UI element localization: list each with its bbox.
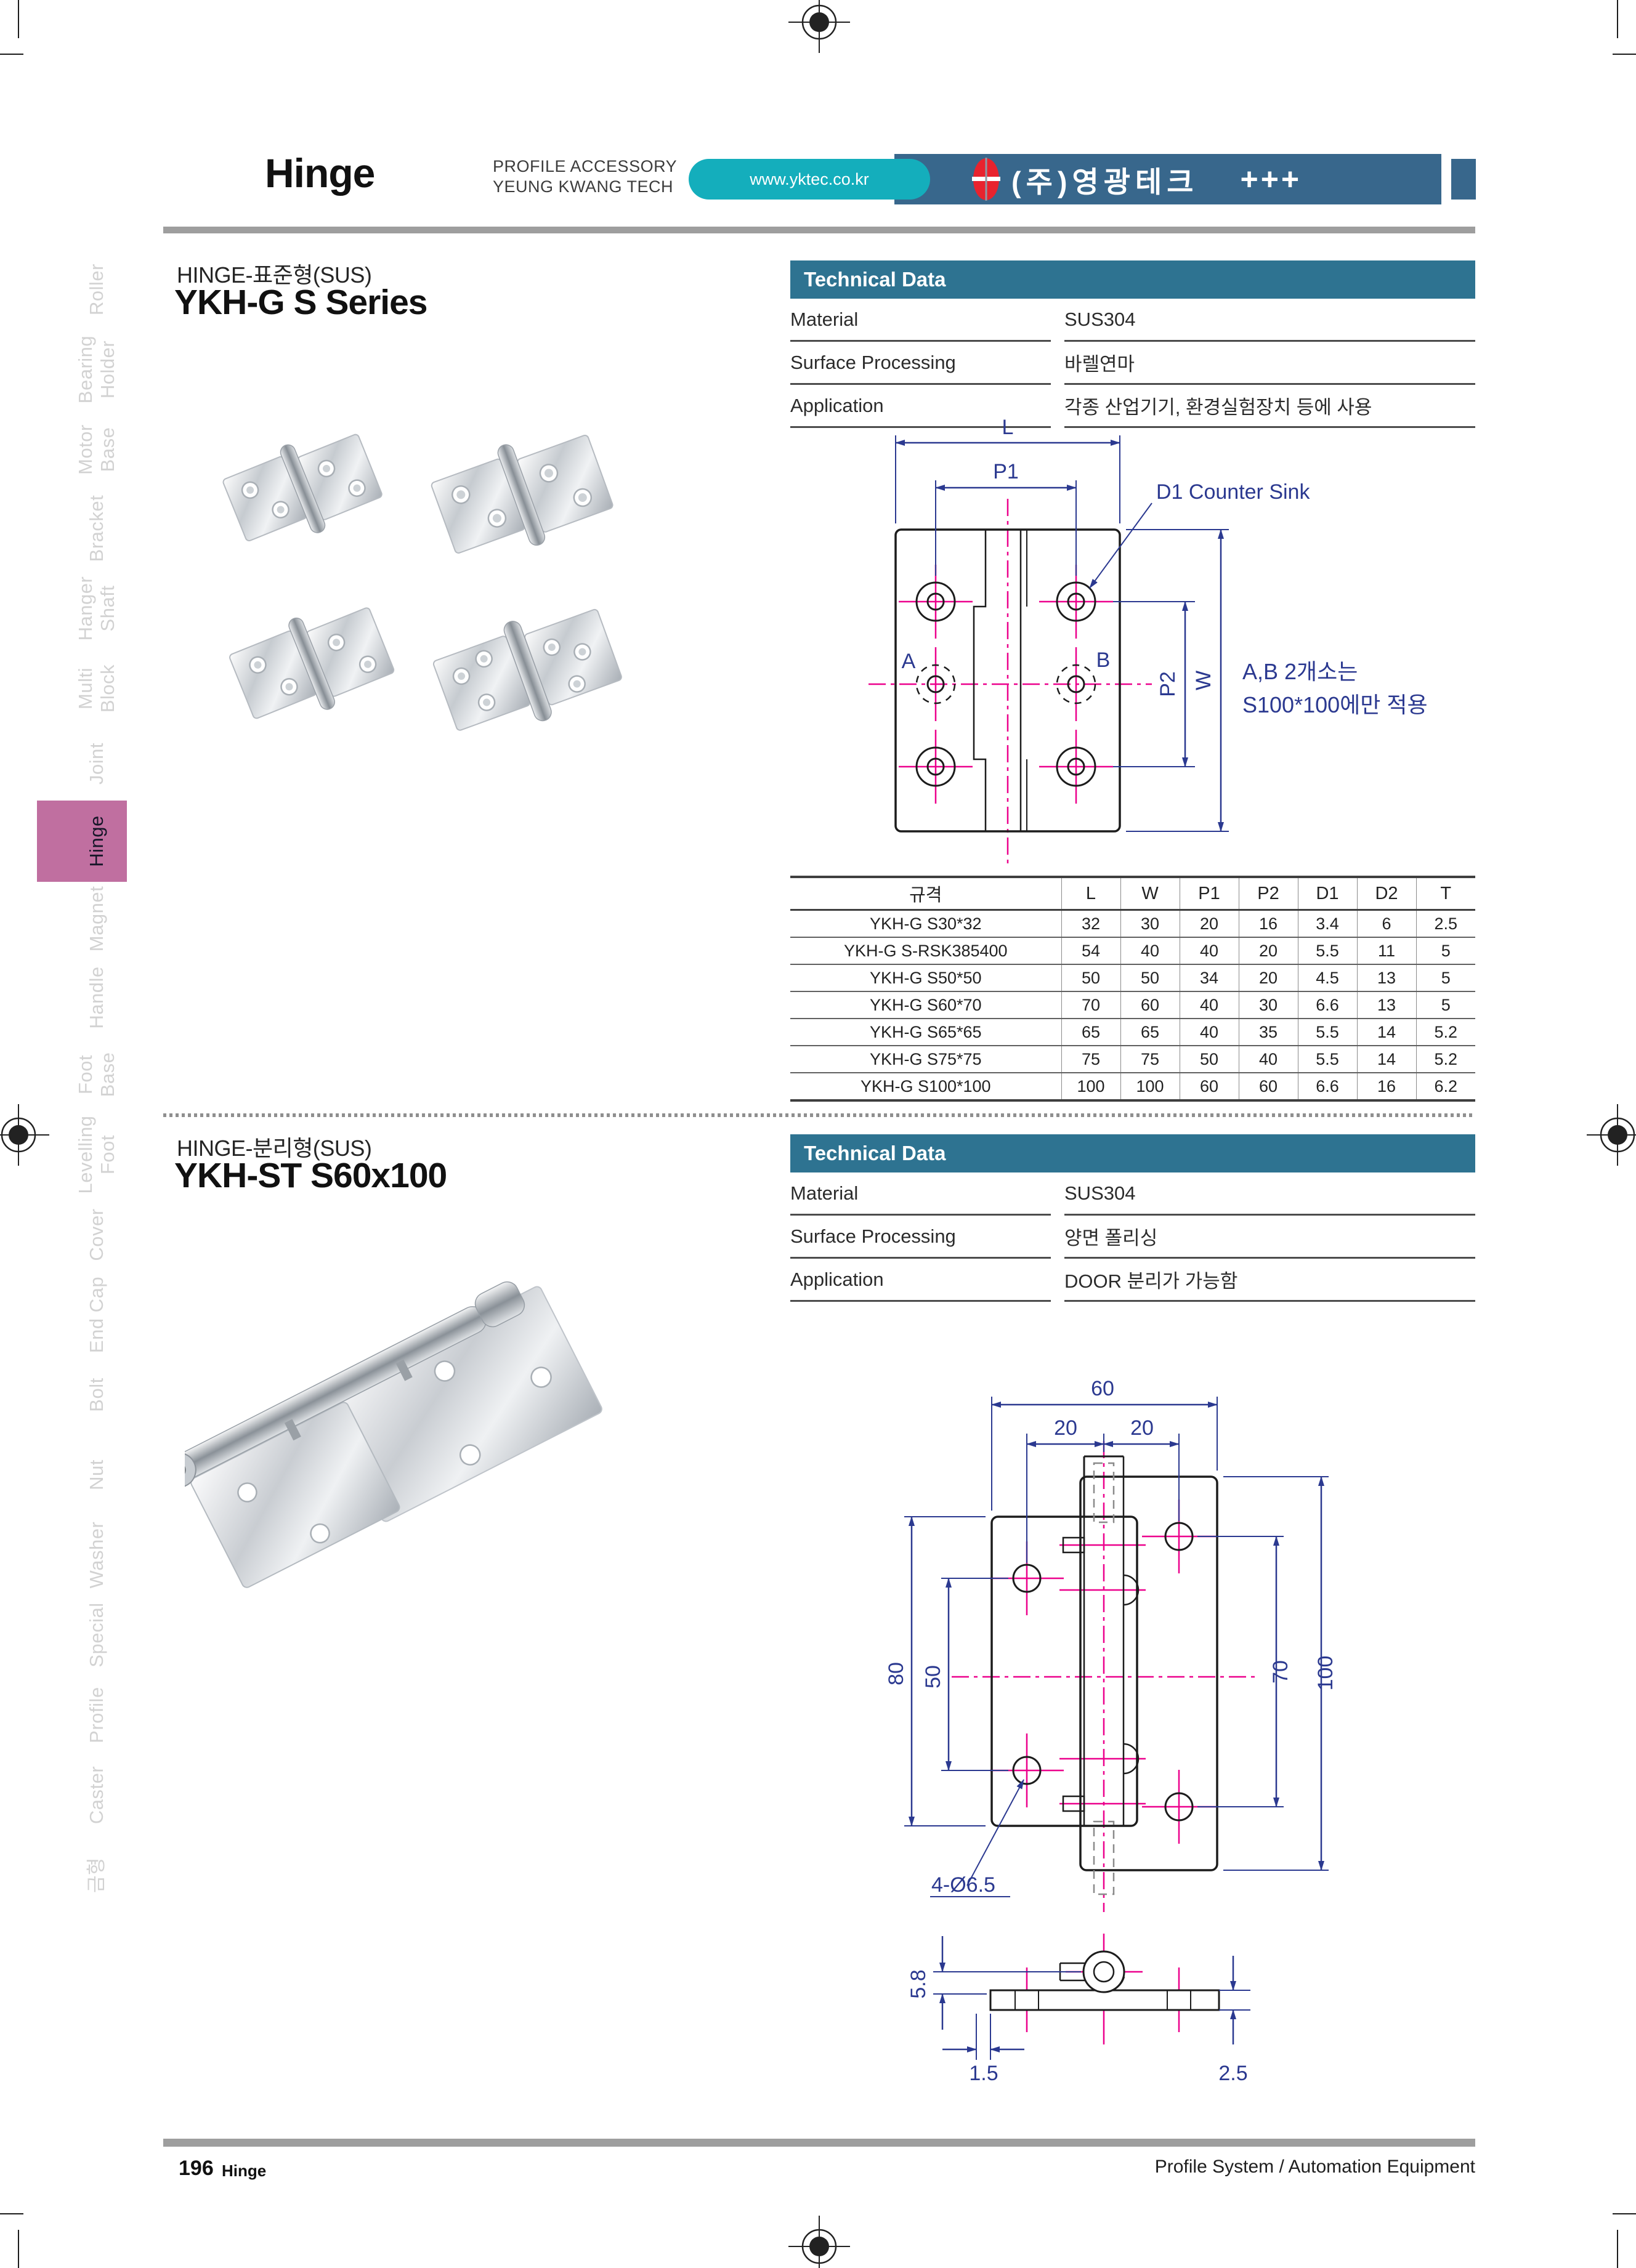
svg-text:1.5: 1.5 xyxy=(969,2062,998,2084)
technical-drawing-ykh-st: 60 20 20 80 50 70 100 4-Ø6.5 xyxy=(856,1355,1398,2084)
registration-target-icon xyxy=(0,1104,49,1166)
crop-mark xyxy=(0,2213,23,2214)
registration-target-icon xyxy=(1587,1104,1636,1166)
hinge-photo xyxy=(219,419,386,559)
svg-text:80: 80 xyxy=(885,1662,908,1685)
svg-text:5.8: 5.8 xyxy=(907,1969,930,1998)
header-rule xyxy=(163,227,1475,233)
svg-text:60: 60 xyxy=(1091,1377,1114,1400)
svg-text:D1 Counter Sink: D1 Counter Sink xyxy=(1156,480,1310,504)
table-row: YKH-G S75*75757550405.5145.2 xyxy=(790,1046,1475,1073)
technical-data-header: Technical Data xyxy=(790,260,1475,299)
crop-mark xyxy=(1617,2230,1618,2268)
svg-text:2.5: 2.5 xyxy=(1218,2062,1247,2084)
table-row: Material SUS304 xyxy=(790,1172,1475,1216)
sidebar-item-mold[interactable]: 금형 xyxy=(71,1801,123,1949)
svg-text:A,B 2개소는: A,B 2개소는 xyxy=(1242,659,1358,684)
plus-marks: +++ xyxy=(1241,161,1302,197)
company-name: (주)영광테크 xyxy=(1011,158,1199,201)
page-number: 196 xyxy=(179,2157,214,2181)
spec-table: 규격 L W P1 P2 D1 D2 T YKH-G S30*323230201… xyxy=(790,876,1475,1102)
catalog-page: Roller BearingHolder MotorBase Bracket H… xyxy=(0,0,1636,2268)
svg-text:P1: P1 xyxy=(993,460,1019,483)
svg-text:50: 50 xyxy=(921,1665,945,1689)
product-photo-ykh-st xyxy=(185,1269,628,1601)
header-subtitle: PROFILE ACCESSORY YEUNG KWANG TECH xyxy=(493,156,677,197)
hinge-photo xyxy=(429,592,626,750)
svg-text:S100*100에만 적용: S100*100에만 적용 xyxy=(1242,692,1428,717)
section-divider xyxy=(163,1113,1475,1117)
svg-text:70: 70 xyxy=(1269,1660,1292,1684)
crop-mark xyxy=(18,2230,19,2268)
table-row: Material SUS304 xyxy=(790,299,1475,342)
table-row: YKH-G S65*65656540355.5145.2 xyxy=(790,1019,1475,1046)
table-header-row: 규격 L W P1 P2 D1 D2 T xyxy=(790,877,1475,910)
table-row: Surface Processing 바렐연마 xyxy=(790,342,1475,385)
product-photo-ykh-g-series xyxy=(185,388,659,776)
table-row: Application DOOR 분리가 가능함 xyxy=(790,1259,1475,1302)
table-row: YKH-G S100*10010010060606.6166.2 xyxy=(790,1073,1475,1100)
table-row: YKH-G S30*32323020163.462.5 xyxy=(790,910,1475,938)
section1-title: YKH-G S Series xyxy=(174,282,427,323)
banner-notch xyxy=(1441,154,1451,204)
svg-text:P2: P2 xyxy=(1156,671,1180,697)
website-pill[interactable]: www.yktec.co.kr xyxy=(689,159,930,200)
svg-text:20: 20 xyxy=(1130,1416,1154,1440)
footer-rule xyxy=(163,2139,1475,2147)
banner-tail xyxy=(1451,159,1476,200)
section2-title: YKH-ST S60x100 xyxy=(174,1155,447,1196)
technical-data-2: Technical Data Material SUS304 Surface P… xyxy=(790,1134,1475,1302)
technical-data-header: Technical Data xyxy=(790,1134,1475,1172)
crop-mark xyxy=(18,0,19,38)
technical-drawing-ykh-g: L P1 P2 W D1 Counter Sink A B A,B 2개소는 S… xyxy=(859,403,1478,871)
svg-text:4-Ø6.5: 4-Ø6.5 xyxy=(931,1873,995,1897)
website-url: www.yktec.co.kr xyxy=(750,170,869,189)
page-title: Hinge xyxy=(265,150,375,196)
svg-text:W: W xyxy=(1192,671,1215,690)
hinge-photo xyxy=(225,591,399,736)
svg-text:A: A xyxy=(902,650,916,673)
table-row: YKH-G S60*70706040306.6135 xyxy=(790,991,1475,1019)
footer-section-label: Hinge xyxy=(222,2161,266,2181)
crop-mark xyxy=(1617,0,1618,38)
svg-text:20: 20 xyxy=(1054,1416,1077,1440)
svg-text:L: L xyxy=(1002,416,1014,439)
crop-mark xyxy=(0,54,23,55)
svg-text:B: B xyxy=(1096,648,1111,672)
crop-mark xyxy=(1613,54,1636,55)
footer-tagline: Profile System / Automation Equipment xyxy=(1155,2157,1475,2177)
crop-mark xyxy=(1613,2213,1636,2214)
svg-text:100: 100 xyxy=(1314,1656,1337,1691)
hinge-photo xyxy=(427,417,617,573)
table-row: YKH-G S50*50505034204.5135 xyxy=(790,964,1475,991)
registration-target-icon xyxy=(788,0,850,53)
table-row: YKH-G S-RSK385400544040205.5115 xyxy=(790,937,1475,964)
registration-target-icon xyxy=(788,2216,850,2268)
table-row: Surface Processing 양면 폴리싱 xyxy=(790,1216,1475,1259)
company-logo-icon xyxy=(972,158,1000,201)
